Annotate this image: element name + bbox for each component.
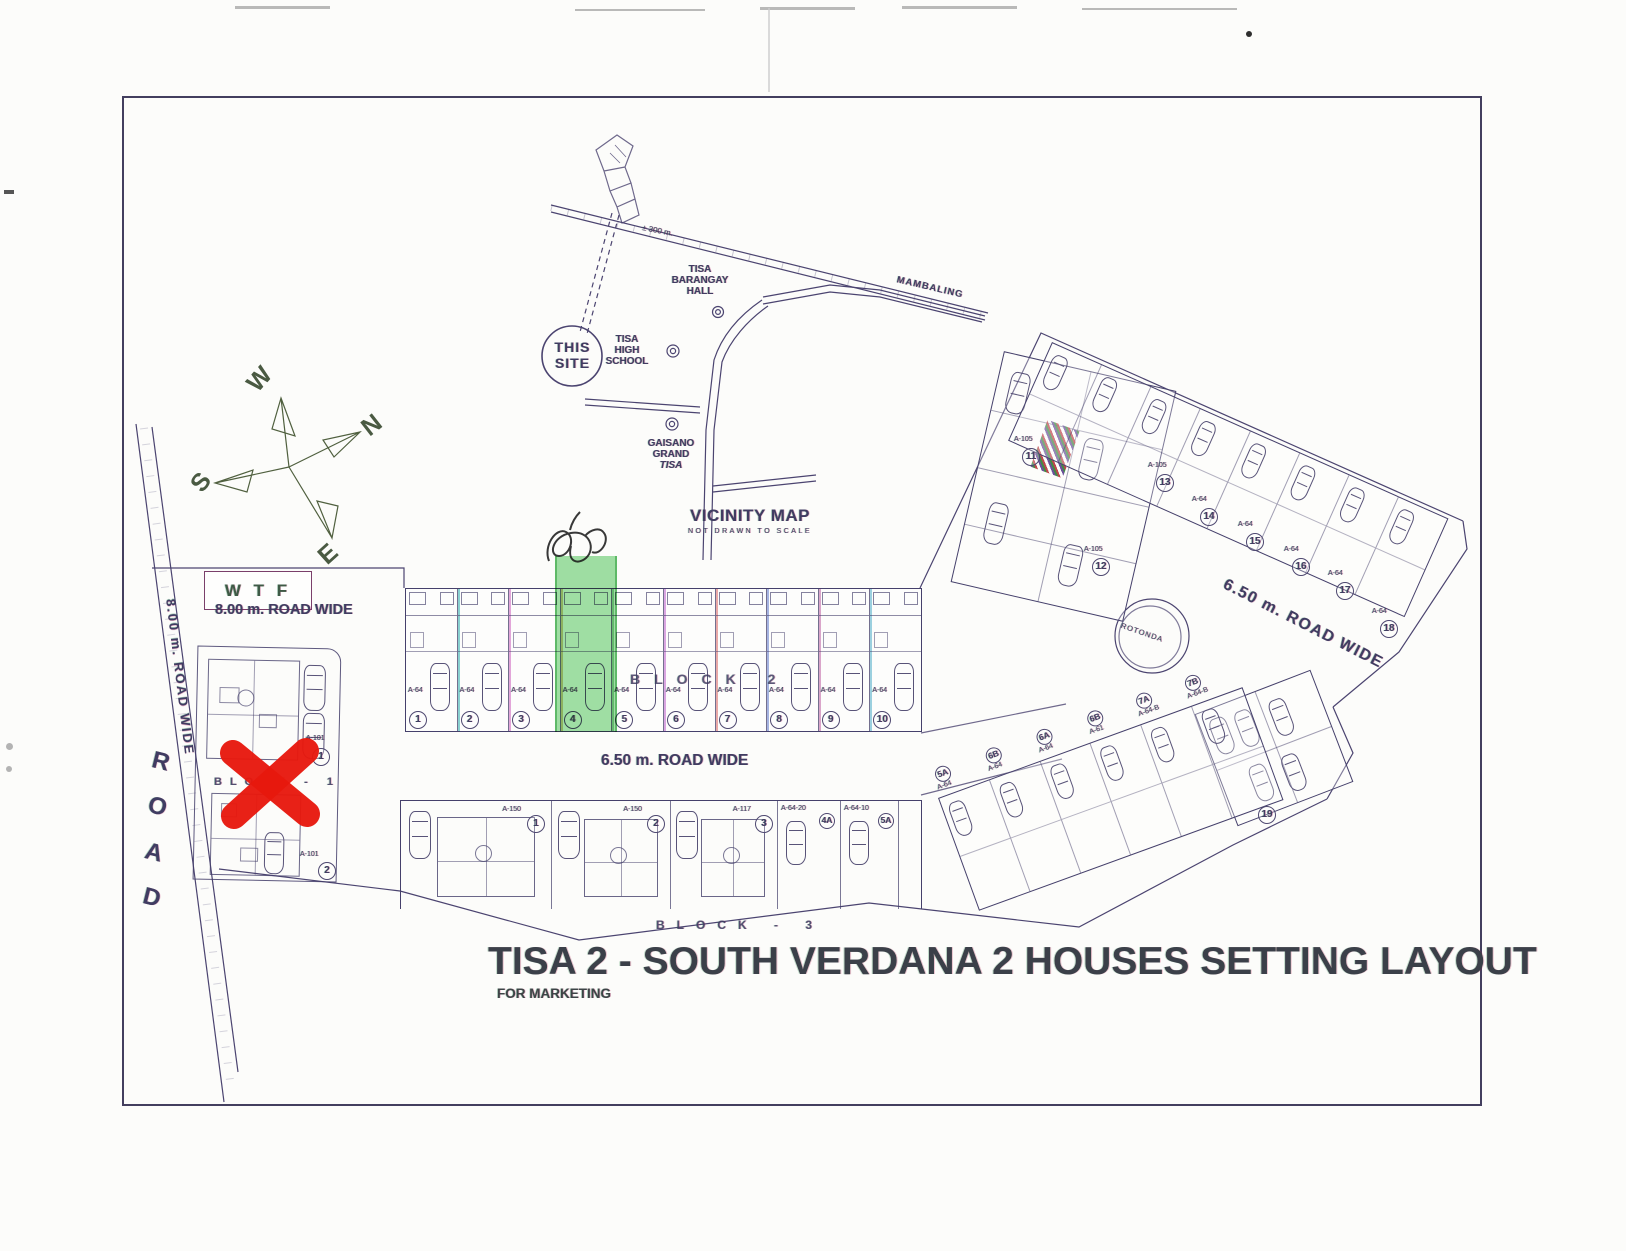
unit-model-label: A-150 — [502, 806, 521, 814]
unit-model-label: A-64 — [821, 687, 836, 695]
block2-row: A-641 A-642 A-643 A-644 A-645 A-646 A-64… — [405, 588, 922, 732]
scanned-site-plan-page: THIS SITE TISA BARANGAY HALL TISA HIGH S… — [0, 0, 1626, 1251]
car-icon — [1386, 507, 1416, 547]
unit-model-label: A-64 — [1238, 521, 1253, 529]
block2-unit-6: A-646 — [664, 589, 716, 731]
block2-unit-3: A-643 — [509, 589, 561, 731]
car-icon — [997, 780, 1025, 820]
lot-number-badge: 17 — [1336, 582, 1354, 600]
unit-model-label: A-64 — [1284, 546, 1299, 554]
lot-number-badge: 5A — [878, 813, 894, 829]
unit-model-label: A-64 — [666, 687, 681, 695]
lot-number-badge: 14 — [1200, 508, 1218, 526]
car-icon — [1287, 463, 1317, 503]
block2-unit-2: A-642 — [458, 589, 510, 731]
block3-row: A-150 1 A-150 2 A-117 3 A-64-20 4A A-64-… — [400, 800, 922, 909]
car-icon — [1090, 375, 1120, 415]
unit-model-label: A-64-10 — [844, 805, 869, 813]
block3-lot-1: A-150 1 — [401, 801, 552, 909]
block3-lot-3: A-117 3 — [671, 801, 778, 909]
car-icon — [981, 501, 1010, 546]
lot-number-badge: 2 — [318, 862, 336, 880]
car-icon — [1238, 441, 1268, 481]
car-icon — [791, 663, 811, 711]
car-icon — [430, 663, 450, 711]
unit-model-label: A-64 — [769, 687, 784, 695]
unit-model-label: A-101 — [300, 851, 319, 859]
unit-model-label: A-117 — [733, 806, 751, 814]
car-icon — [264, 832, 285, 874]
car-icon — [409, 811, 431, 859]
car-icon — [1149, 725, 1177, 765]
car-icon — [1279, 751, 1309, 793]
block2-unit-8: A-648 — [767, 589, 819, 731]
table-glyph — [610, 847, 627, 864]
block2-label: BLOCK 2 — [630, 671, 789, 687]
car-icon — [786, 821, 806, 865]
car-icon — [1337, 485, 1367, 525]
car-icon — [303, 665, 326, 711]
unit-model-label: A-64 — [460, 687, 475, 695]
unit-model-label: A-64 — [408, 687, 423, 695]
road-label-top-left: 8.00 m. ROAD WIDE — [215, 602, 353, 618]
lot-number-badge: 11 — [1022, 448, 1040, 466]
high-school-label: TISA HIGH SCHOOL — [592, 334, 662, 367]
gaisano-label: GAISANO GRAND TISA — [628, 438, 714, 471]
lot-number-badge: 1 — [409, 711, 427, 729]
block1-label: BLOCK - 1 — [214, 776, 341, 788]
lot-number-badge: 1 — [312, 748, 330, 766]
lot-number-badge: 19 — [1258, 806, 1276, 824]
high-school-marker — [667, 345, 679, 357]
unit-model-label: A-64 — [1328, 570, 1343, 578]
furniture-mark — [259, 714, 277, 728]
car-icon — [558, 811, 580, 859]
barangay-hall-marker — [713, 307, 724, 318]
unit-model-label: A-105 — [1084, 546, 1103, 554]
vicinity-map-title: VICINITY MAP NOT DRAWN TO SCALE — [660, 506, 840, 535]
car-icon — [849, 821, 869, 865]
car-icon — [1139, 397, 1169, 437]
car-icon — [947, 799, 975, 839]
car-icon — [482, 663, 502, 711]
block2-unit-7: A-647 — [716, 589, 768, 731]
compass-icon — [215, 398, 360, 538]
block1-unit-plan — [206, 659, 300, 761]
unit-model-label: A-64 — [872, 687, 887, 695]
unit-model-label: A-64 — [1372, 608, 1387, 616]
unit-model-label: A-101 — [306, 735, 325, 743]
car-icon — [1040, 353, 1070, 393]
lot-number-badge: 8 — [770, 711, 788, 729]
lot-number-badge: 12 — [1092, 558, 1110, 576]
unit-model-label: A-105 — [1014, 436, 1033, 444]
table-glyph — [475, 845, 492, 862]
block2-unit-1: A-641 — [406, 589, 458, 731]
unit-model-label: A-64-20 — [781, 805, 806, 813]
car-icon — [676, 811, 698, 859]
unit-model-label: A-64 — [718, 687, 733, 695]
unit-model-label: A-105 — [1148, 462, 1167, 470]
lot-number-badge: 18 — [1380, 620, 1398, 638]
car-icon — [1098, 743, 1126, 783]
car-icon — [1056, 543, 1085, 588]
barangay-hall-label: TISA BARANGAY HALL — [650, 264, 750, 297]
vicinity-subdivision-sketch — [596, 135, 639, 223]
lot-number-badge: 10 — [873, 711, 891, 729]
lot-number-badge: 5 — [615, 711, 633, 729]
page-title: TISA 2 - SOUTH VERDANA 2 HOUSES SETTING … — [488, 940, 1537, 984]
lot-number-badge: 9 — [822, 711, 840, 729]
page-subtitle: FOR MARKETING — [497, 986, 1537, 1001]
lot-number-badge: 7 — [719, 711, 737, 729]
unit-model-label: A-64 — [1192, 496, 1207, 504]
lot-number-badge: 4A — [819, 813, 835, 829]
scale-note: NOT DRAWN TO SCALE — [660, 528, 840, 535]
block3-lot-4a: A-64-20 4A — [778, 801, 841, 909]
furniture-mark — [219, 687, 239, 703]
gaisano-marker — [666, 418, 678, 430]
road-label-center: 6.50 m. ROAD WIDE — [601, 752, 748, 770]
table-glyph — [723, 847, 740, 864]
car-icon — [1188, 419, 1218, 459]
furniture-mark — [221, 803, 237, 817]
title-block: TISA 2 - SOUTH VERDANA 2 HOUSES SETTING … — [488, 940, 1537, 1001]
block3-label: BLOCK - 3 — [656, 918, 824, 932]
block2-unit-9: A-649 — [819, 589, 871, 731]
car-icon — [1200, 707, 1228, 747]
unit-model-label: A-64 — [511, 687, 526, 695]
wtf-annotation-text: W T F — [225, 581, 291, 600]
car-icon — [1048, 762, 1076, 802]
block3-lot-2: A-150 2 — [552, 801, 671, 909]
lot-number-badge: 16 — [1292, 558, 1310, 576]
furniture-mark — [240, 847, 258, 861]
car-icon — [533, 663, 553, 711]
lot-number-badge: 3 — [512, 711, 530, 729]
block2-unit-10: A-6410 — [870, 589, 921, 731]
car-icon — [894, 663, 914, 711]
lot-number-badge: 3 — [755, 815, 773, 833]
unit-model-label: A-150 — [623, 806, 642, 814]
highlighted-lot-4 — [555, 556, 617, 732]
lot-number-badge: 13 — [1156, 474, 1174, 492]
vicinity-road — [551, 205, 988, 313]
block2-unit-5: A-645 — [612, 589, 664, 731]
lot-number-badge: 1 — [527, 815, 545, 833]
car-icon — [843, 663, 863, 711]
lot-number-badge: 2 — [461, 711, 479, 729]
lot-number-badge: 15 — [1246, 533, 1264, 551]
lot-number-badge: 2 — [647, 815, 665, 833]
block3-lot-5a: A-64-10 5A — [841, 801, 899, 909]
lot-number-badge: 6 — [667, 711, 685, 729]
